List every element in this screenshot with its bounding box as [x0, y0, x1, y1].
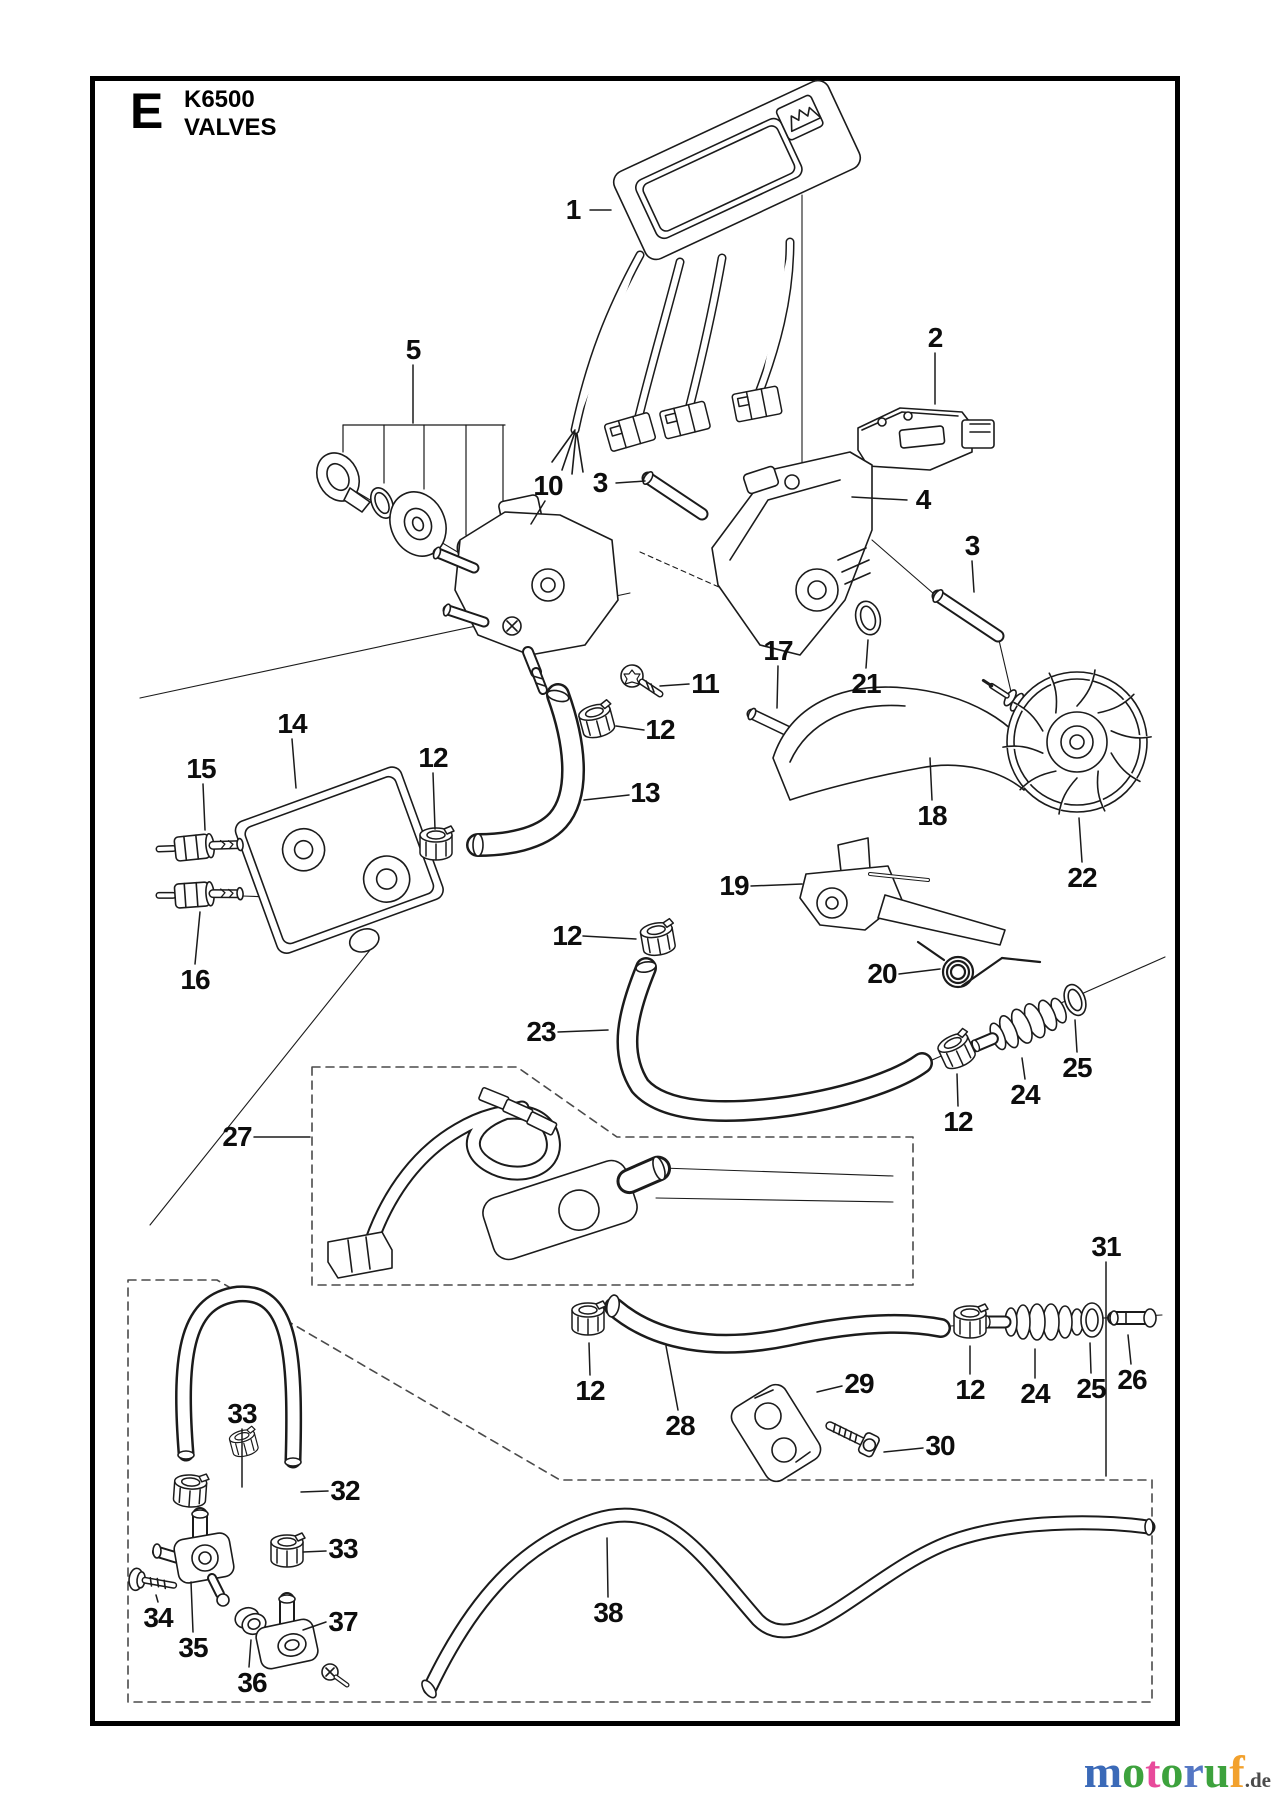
leader-line-24: [1022, 1058, 1025, 1079]
part-clamp-12a: [577, 699, 619, 741]
leader-line-33: [303, 1551, 326, 1552]
part-fitting-15: [158, 830, 244, 863]
part-impeller-22: [1003, 670, 1151, 814]
part-knob-5: [309, 446, 370, 512]
part-hose-28: [605, 1294, 941, 1344]
watermark-letter: u: [1204, 1746, 1230, 1797]
leader-line-12: [589, 1343, 590, 1375]
leader-line-3: [616, 481, 645, 483]
exploded-parts-diagram: [0, 0, 1284, 1800]
part-valve-body: [432, 494, 618, 690]
part-valve-35: [153, 1510, 235, 1606]
leader-line-11: [660, 684, 689, 686]
parts-diagram-page: E K6500 VALVES: [0, 0, 1284, 1800]
leader-line-17: [777, 666, 778, 708]
leader-line-22: [1079, 818, 1082, 862]
part-pin-3a: [641, 470, 702, 514]
leader-line-34: [156, 1595, 158, 1602]
part-lever-19: [800, 838, 1005, 945]
watermark-letter: o: [1122, 1746, 1145, 1797]
part-clamp-33mid: [228, 1426, 261, 1459]
watermark-letter: m: [1084, 1746, 1122, 1797]
watermark-letter: r: [1183, 1746, 1203, 1797]
leader-line-15: [203, 784, 205, 830]
leader-line-12: [616, 726, 644, 730]
part-screw-34: [128, 1568, 175, 1595]
leader-line-38: [607, 1538, 608, 1597]
part-oring-25b: [1081, 1303, 1103, 1337]
part-hose-23: [627, 960, 922, 1111]
part-bracket: [712, 452, 872, 655]
part-clamp-33b: [271, 1533, 305, 1567]
part-hose-38: [419, 1515, 1153, 1700]
leader-line-32: [301, 1491, 328, 1492]
leader-line-13: [584, 795, 629, 800]
watermark-suffix: .de: [1245, 1768, 1271, 1792]
leader-line-21: [866, 640, 868, 668]
part-clamp-12c: [639, 918, 678, 957]
part-switch: [858, 408, 994, 470]
leader-line-23: [558, 1030, 608, 1032]
leader-line-29: [817, 1386, 842, 1392]
part-tube-13: [473, 688, 573, 856]
leader-line-25: [1090, 1343, 1091, 1373]
part-connector-24b: [984, 1304, 1083, 1340]
watermark-letter: t: [1145, 1746, 1160, 1797]
part-clamp-12b: [420, 826, 454, 860]
part-plate-14: [233, 764, 455, 979]
leader-line-36: [249, 1640, 251, 1667]
leader-line-16: [195, 912, 200, 964]
part-clamp-12e: [572, 1301, 606, 1335]
part-clamp-12f: [954, 1304, 988, 1338]
part-cover-18: [773, 687, 1036, 800]
part-screw-11: [621, 665, 660, 694]
part-pin-3b: [931, 588, 998, 636]
leader-line-28: [666, 1346, 678, 1410]
leader-line-26: [1128, 1335, 1131, 1364]
leader-line-19: [751, 884, 802, 886]
leader-line-25: [1075, 1020, 1077, 1052]
part-fitting-16: [158, 880, 243, 910]
part-screw-30: [825, 1416, 880, 1458]
part-clamp-29: [727, 1380, 825, 1486]
leader-line-30: [884, 1448, 923, 1452]
leader-line-12: [433, 773, 435, 829]
watermark-logo: motoruf.de: [1084, 1749, 1271, 1795]
part-spring-20: [918, 942, 1040, 987]
leader-line-3: [972, 561, 974, 592]
leader-line-35: [191, 1582, 193, 1632]
part-oring-21: [852, 598, 884, 637]
leader-line-12: [583, 936, 636, 939]
part-control-panel: [552, 77, 864, 474]
part-connector-24a: [966, 992, 1071, 1064]
leader-line-20: [899, 969, 940, 974]
leader-line-14: [292, 739, 296, 788]
part-clamp-12d: [934, 1027, 979, 1072]
part-plug-26: [1110, 1309, 1156, 1327]
leader-line-12: [957, 1074, 958, 1106]
part-clamp-33a: [173, 1472, 209, 1508]
part-cable-assembly-27: [328, 1087, 676, 1278]
watermark-letter: o: [1160, 1746, 1183, 1797]
watermark-letter: f: [1229, 1746, 1244, 1797]
part-elbow-37: [254, 1595, 347, 1685]
